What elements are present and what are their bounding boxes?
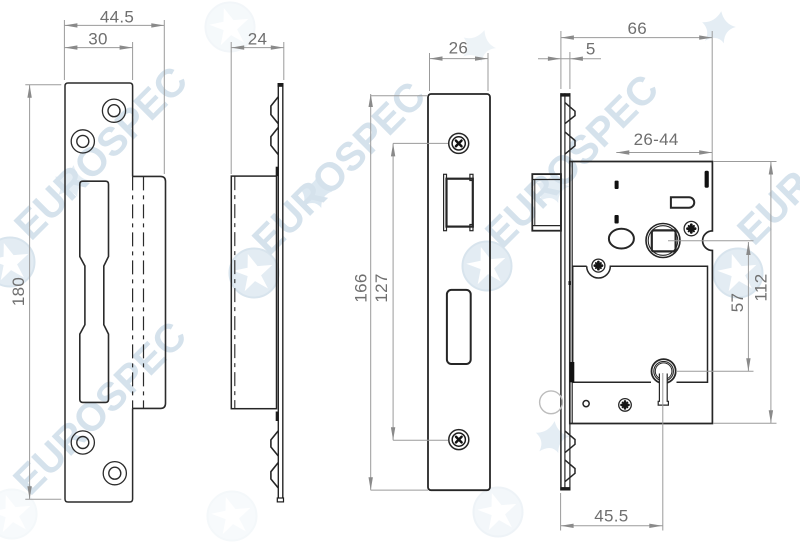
svg-text:44.5: 44.5 [100, 8, 134, 27]
svg-text:166: 166 [352, 273, 371, 302]
svg-text:24: 24 [248, 30, 268, 49]
svg-text:112: 112 [751, 273, 770, 301]
svg-text:5: 5 [586, 40, 596, 59]
svg-text:EUROSPEC: EUROSPEC [5, 314, 195, 504]
svg-text:EUROSPEC: EUROSPEC [6, 59, 196, 249]
svg-text:127: 127 [372, 273, 391, 302]
svg-text:26: 26 [449, 39, 469, 58]
svg-text:180: 180 [9, 277, 28, 306]
svg-text:30: 30 [88, 30, 108, 49]
svg-text:EUROSPEC: EUROSPEC [729, 64, 800, 254]
svg-text:45.5: 45.5 [594, 507, 628, 526]
svg-text:57: 57 [728, 293, 747, 313]
svg-text:26-44: 26-44 [634, 130, 679, 149]
svg-text:EUROSPEC: EUROSPEC [244, 74, 434, 264]
svg-text:66: 66 [627, 19, 647, 38]
